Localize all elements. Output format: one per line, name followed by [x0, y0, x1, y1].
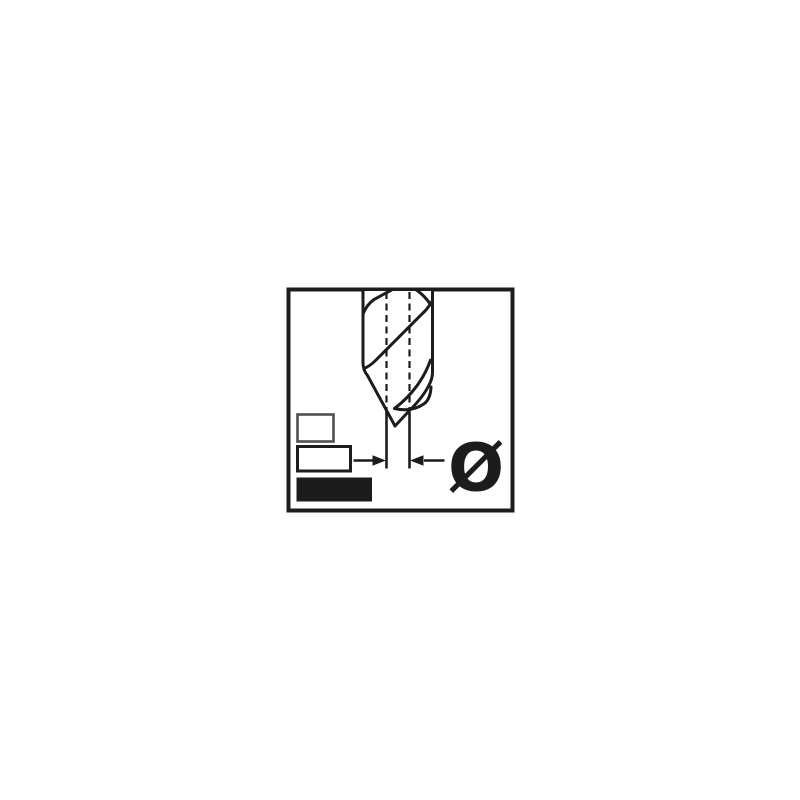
size-box-small — [298, 415, 334, 442]
size-box-large-filled — [297, 478, 373, 502]
drill-diameter-pictogram: Ø — [286, 287, 515, 513]
size-box-medium — [298, 447, 351, 472]
diameter-symbol: Ø — [448, 430, 504, 507]
canvas: Ø — [0, 0, 800, 800]
pictogram-svg: Ø — [286, 287, 515, 513]
